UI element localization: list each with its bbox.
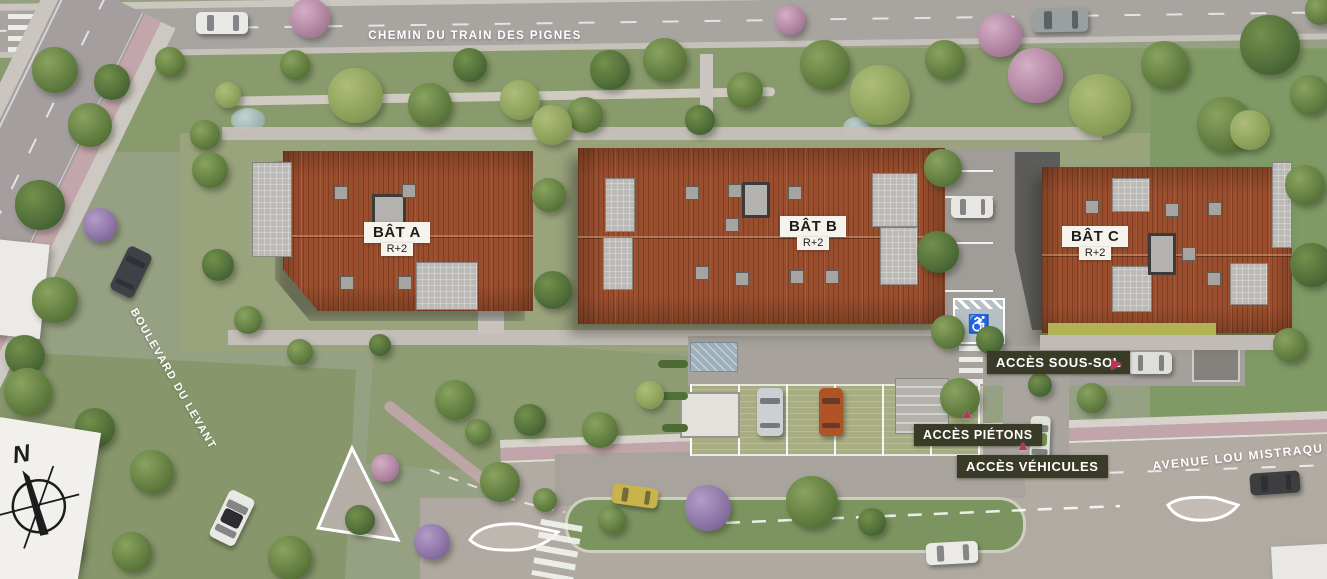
tree <box>775 5 805 35</box>
car-windshield <box>962 544 969 560</box>
skylight <box>728 184 742 198</box>
car-windshield <box>233 15 239 31</box>
hatch-band <box>955 300 1003 309</box>
tree <box>215 82 241 108</box>
tree <box>976 326 1004 354</box>
tree <box>917 231 959 273</box>
building-c-label: BÂT C R+2 <box>1062 226 1128 260</box>
car-windshield <box>207 15 214 31</box>
tree <box>192 152 228 188</box>
tree <box>1290 75 1327 115</box>
tree <box>234 306 262 334</box>
skylight <box>695 266 709 280</box>
skylight <box>735 272 749 286</box>
car <box>819 388 843 436</box>
car-windshield <box>125 255 146 270</box>
roof-terrace <box>1112 178 1150 212</box>
car-windshield <box>1159 355 1164 371</box>
car-windshield <box>981 199 986 215</box>
skylight <box>725 218 739 232</box>
tree <box>1069 74 1131 136</box>
skylight <box>1208 202 1222 216</box>
tree <box>83 208 117 242</box>
neighbour-building <box>1271 543 1327 579</box>
terrace <box>252 162 292 257</box>
skylight <box>334 186 348 200</box>
building-a-label: BÂT A R+2 <box>364 222 430 256</box>
car-windshield <box>760 398 780 405</box>
tree <box>94 64 130 100</box>
solar-pergola <box>690 342 738 372</box>
tree <box>643 38 687 82</box>
street-label-chemin: CHEMIN DU TRAIN DES PIGNES <box>275 30 675 42</box>
skylight <box>685 186 699 200</box>
car-windshield <box>937 545 945 561</box>
tree <box>590 50 630 90</box>
arrow-up-icon: ▲ <box>960 405 974 421</box>
car <box>196 12 248 34</box>
tree <box>727 72 763 108</box>
tree <box>532 178 566 212</box>
tree <box>369 334 391 356</box>
car-windshield <box>960 199 965 215</box>
tree <box>1290 243 1327 287</box>
tree <box>514 404 546 436</box>
tree <box>598 506 626 534</box>
tree <box>534 271 572 309</box>
tree <box>465 419 491 445</box>
north-walkway <box>222 127 1102 140</box>
building-floors: R+2 <box>1079 247 1112 260</box>
tree <box>345 505 375 535</box>
tree <box>328 68 383 123</box>
building-b-label: BÂT B R+2 <box>780 216 846 250</box>
tree <box>636 381 664 409</box>
roof-terrace <box>603 237 633 290</box>
tree <box>858 508 886 536</box>
tree <box>371 454 399 482</box>
tree <box>155 47 185 77</box>
tree <box>685 485 731 531</box>
hedge <box>660 392 688 400</box>
car <box>1249 470 1300 495</box>
skylight <box>398 276 412 290</box>
car <box>1032 8 1088 33</box>
car-windshield <box>1044 12 1052 29</box>
elevator-shaft <box>1148 233 1176 275</box>
skylight <box>1085 200 1099 214</box>
tree <box>1273 328 1307 362</box>
skylight <box>340 276 354 290</box>
car-windshield <box>822 398 840 405</box>
tree <box>453 48 487 82</box>
access-basement-label: ACCÈS SOUS-SOL <box>987 351 1130 374</box>
site-plan: ♿ CH <box>0 0 1327 579</box>
tree <box>1008 48 1063 103</box>
basement-ramp <box>1192 348 1240 382</box>
tree <box>32 277 78 323</box>
tree <box>800 40 850 90</box>
tree <box>1285 165 1325 205</box>
compass-north-label: N <box>11 440 33 469</box>
tree <box>280 50 310 80</box>
tree <box>15 180 65 230</box>
hedge <box>662 424 688 432</box>
car-windshield <box>1260 476 1268 492</box>
tree <box>925 40 965 80</box>
tree <box>414 524 450 560</box>
tree <box>4 368 52 416</box>
building-name: BÂT A <box>364 222 430 243</box>
tree <box>931 315 965 349</box>
car <box>925 541 978 566</box>
roof-terrace <box>605 178 635 232</box>
car <box>951 196 993 218</box>
roof-terrace <box>1112 266 1152 312</box>
tree <box>786 476 838 528</box>
tree <box>978 13 1022 57</box>
tree <box>533 488 557 512</box>
car-windshield <box>1138 355 1144 371</box>
access-vehicles-label: ACCÈS VÉHICULES <box>957 455 1108 478</box>
tree <box>268 536 312 579</box>
tree <box>190 120 220 150</box>
roof-terrace <box>416 262 478 310</box>
skylight <box>790 270 804 284</box>
roof-terrace <box>1230 263 1268 305</box>
tree <box>480 462 520 502</box>
building-name: BÂT B <box>780 216 846 237</box>
building-floors: R+2 <box>381 243 414 256</box>
roof-terrace <box>880 227 918 285</box>
car-windshield <box>644 490 651 505</box>
car-windshield <box>822 423 840 429</box>
tree <box>68 103 112 147</box>
car-windshield <box>1285 474 1292 490</box>
tree <box>202 249 234 281</box>
tree <box>112 532 152 572</box>
skylight <box>825 270 839 284</box>
tree <box>1240 15 1300 75</box>
skylight <box>1165 203 1179 217</box>
building-floors: R+2 <box>797 237 830 250</box>
hedge <box>658 360 688 368</box>
tree <box>1230 110 1270 150</box>
tree <box>287 339 313 365</box>
arrow-up-icon: ▲ <box>1016 437 1030 453</box>
roof-terrace <box>872 173 918 227</box>
skylight <box>788 186 802 200</box>
tree <box>532 105 572 145</box>
tree <box>1028 373 1052 397</box>
car-windshield <box>1072 11 1078 28</box>
car <box>757 388 783 436</box>
tree <box>1077 383 1107 413</box>
tree <box>582 412 618 448</box>
garage <box>680 392 740 438</box>
building-name: BÂT C <box>1062 226 1128 247</box>
skylight <box>1207 272 1221 286</box>
car-windshield <box>760 423 780 429</box>
elevator-shaft <box>742 182 770 218</box>
car <box>1128 352 1172 374</box>
tree <box>924 149 962 187</box>
tree <box>435 380 475 420</box>
tree <box>130 450 174 494</box>
walkway <box>1040 335 1295 350</box>
car-windshield <box>1032 449 1047 455</box>
skylight <box>1182 247 1196 261</box>
tree <box>1141 41 1189 89</box>
tree <box>567 97 603 133</box>
arrow-right-icon: ▶ <box>1111 355 1122 372</box>
car-windshield <box>621 487 629 502</box>
tree <box>850 65 910 125</box>
skylight <box>402 184 416 198</box>
tree <box>408 83 452 127</box>
tree <box>32 47 78 93</box>
tree <box>685 105 715 135</box>
